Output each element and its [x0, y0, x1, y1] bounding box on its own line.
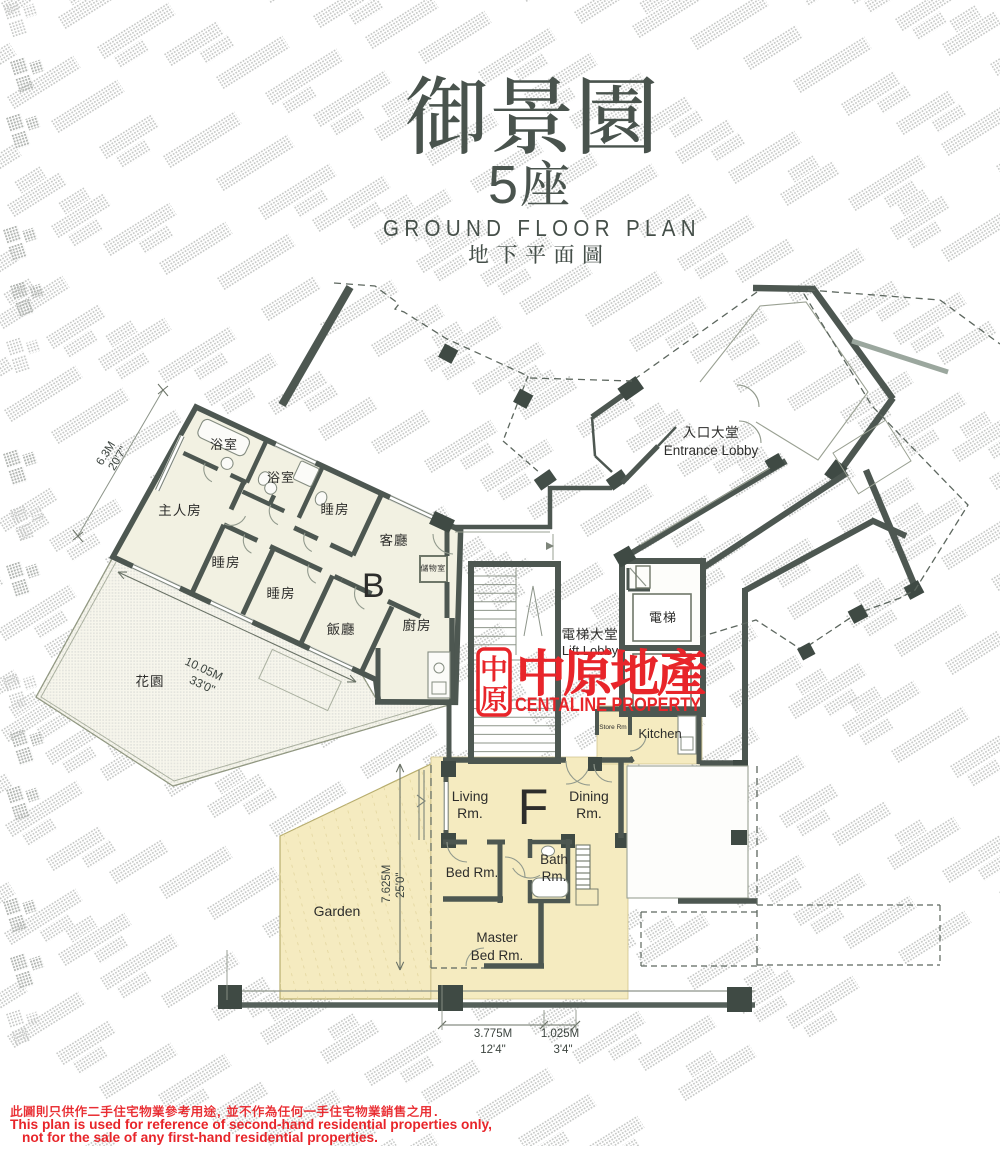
svg-text:Bed Rm.: Bed Rm. [446, 865, 499, 880]
svg-text:Bed Rm.: Bed Rm. [471, 948, 524, 963]
svg-text:7.625M: 7.625M [381, 865, 393, 903]
svg-text:Master: Master [476, 930, 518, 945]
svg-text:not for the sale of any first-: not for the sale of any first-hand resid… [22, 1130, 378, 1145]
svg-text:25'0": 25'0" [395, 873, 407, 898]
svg-text:Living: Living [452, 788, 489, 804]
svg-text:F: F [518, 779, 549, 835]
svg-text:Rm.: Rm. [457, 805, 483, 821]
svg-text:Rm.: Rm. [542, 869, 567, 884]
svg-text:5: 5 [488, 155, 518, 215]
svg-text:Entrance Lobby: Entrance Lobby [664, 443, 759, 458]
svg-text:GROUND FLOOR PLAN: GROUND FLOOR PLAN [383, 215, 701, 241]
svg-text:Bath: Bath [540, 852, 568, 867]
svg-text:Store Rm: Store Rm [599, 724, 626, 731]
svg-text:12'4": 12'4" [480, 1044, 505, 1056]
svg-text:Rm.: Rm. [576, 805, 602, 821]
svg-text:Kitchen: Kitchen [638, 726, 681, 741]
svg-text:B: B [362, 567, 385, 605]
svg-text:3.775M: 3.775M [474, 1028, 512, 1040]
svg-text:Garden: Garden [314, 903, 361, 919]
svg-text:CENTALINE PROPERTY: CENTALINE PROPERTY [515, 694, 701, 716]
svg-text:Dining: Dining [569, 788, 609, 804]
svg-text:1.025M: 1.025M [541, 1028, 579, 1040]
svg-text:3'4": 3'4" [553, 1044, 572, 1056]
